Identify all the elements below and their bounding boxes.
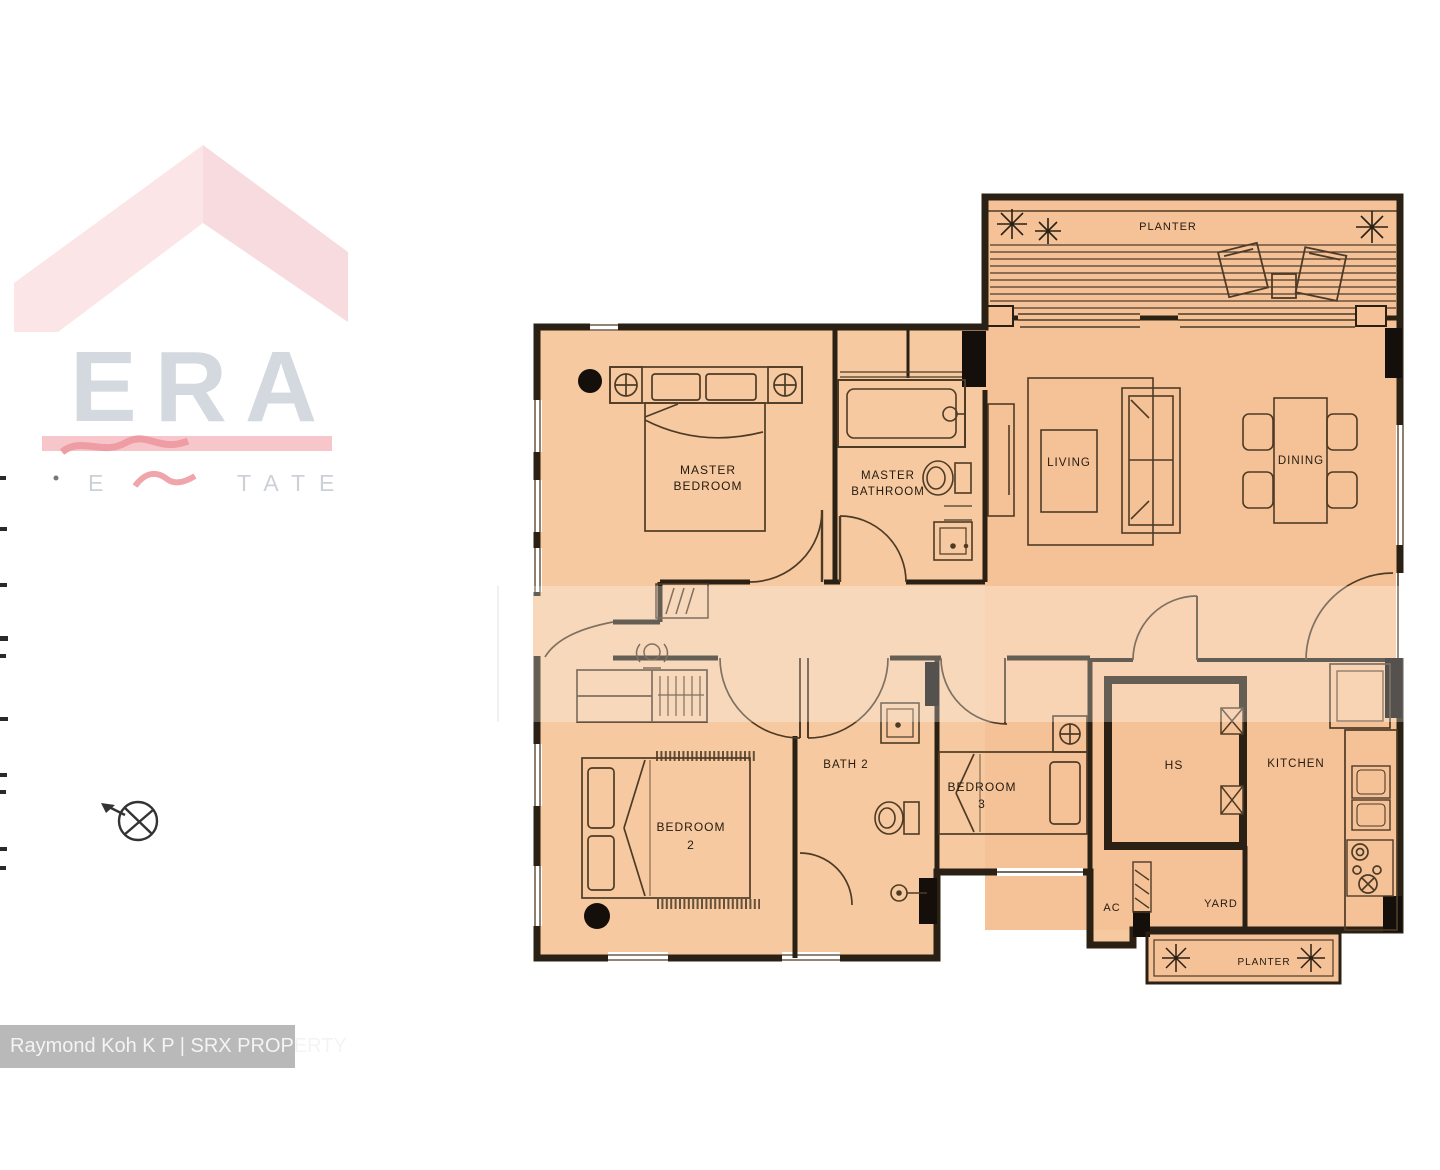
room-label-planter-bottom: PLANTER bbox=[1237, 957, 1290, 968]
floor-plan-page: ERA E TATE bbox=[0, 0, 1440, 1170]
compass-north-icon bbox=[101, 802, 157, 840]
room-label-dining: DINING bbox=[1278, 455, 1324, 467]
room-label-planter-top: PLANTER bbox=[1139, 221, 1197, 233]
room-label-bath-2: BATH 2 bbox=[823, 759, 868, 771]
era-roof-left bbox=[14, 145, 203, 332]
era-scribble-2 bbox=[135, 474, 195, 486]
svg-text:BEDROOM: BEDROOM bbox=[673, 479, 742, 493]
room-label-master-bedroom: MASTER bbox=[680, 463, 736, 477]
room-label-living: LIVING bbox=[1047, 457, 1091, 469]
room-label-bedroom-2: BEDROOM bbox=[656, 820, 725, 834]
room-label-bedroom-3: BEDROOM bbox=[947, 780, 1016, 794]
scan-band bbox=[498, 586, 1440, 722]
era-roof-right bbox=[203, 145, 348, 322]
era-sub-left: E bbox=[88, 470, 109, 496]
edge-text-remnants bbox=[0, 476, 59, 871]
agent-caption-text: Raymond Koh K P | SRX PROPERTY bbox=[10, 1035, 347, 1057]
room-label-master-bathroom: MASTER bbox=[861, 470, 915, 482]
column-dot bbox=[584, 903, 610, 929]
planter-bottom: PLANTER bbox=[1147, 933, 1340, 983]
floor-plan: ERA E TATE bbox=[0, 0, 1440, 1170]
room-label-kitchen: KITCHEN bbox=[1267, 758, 1324, 770]
svg-text:2: 2 bbox=[687, 838, 695, 852]
era-watermark: ERA E TATE bbox=[14, 145, 348, 496]
era-sub-right: TATE bbox=[237, 470, 348, 496]
era-brand-text: ERA bbox=[70, 331, 335, 443]
room-label-hs: HS bbox=[1165, 758, 1184, 772]
room-label-yard: YARD bbox=[1204, 898, 1238, 910]
room-label-ac: AC bbox=[1103, 902, 1120, 914]
column-dot bbox=[578, 369, 602, 393]
svg-text:3: 3 bbox=[978, 797, 986, 811]
svg-text:BATHROOM: BATHROOM bbox=[851, 486, 925, 498]
agent-caption: Raymond Koh K P | SRX PROPERTY bbox=[0, 1025, 295, 1068]
